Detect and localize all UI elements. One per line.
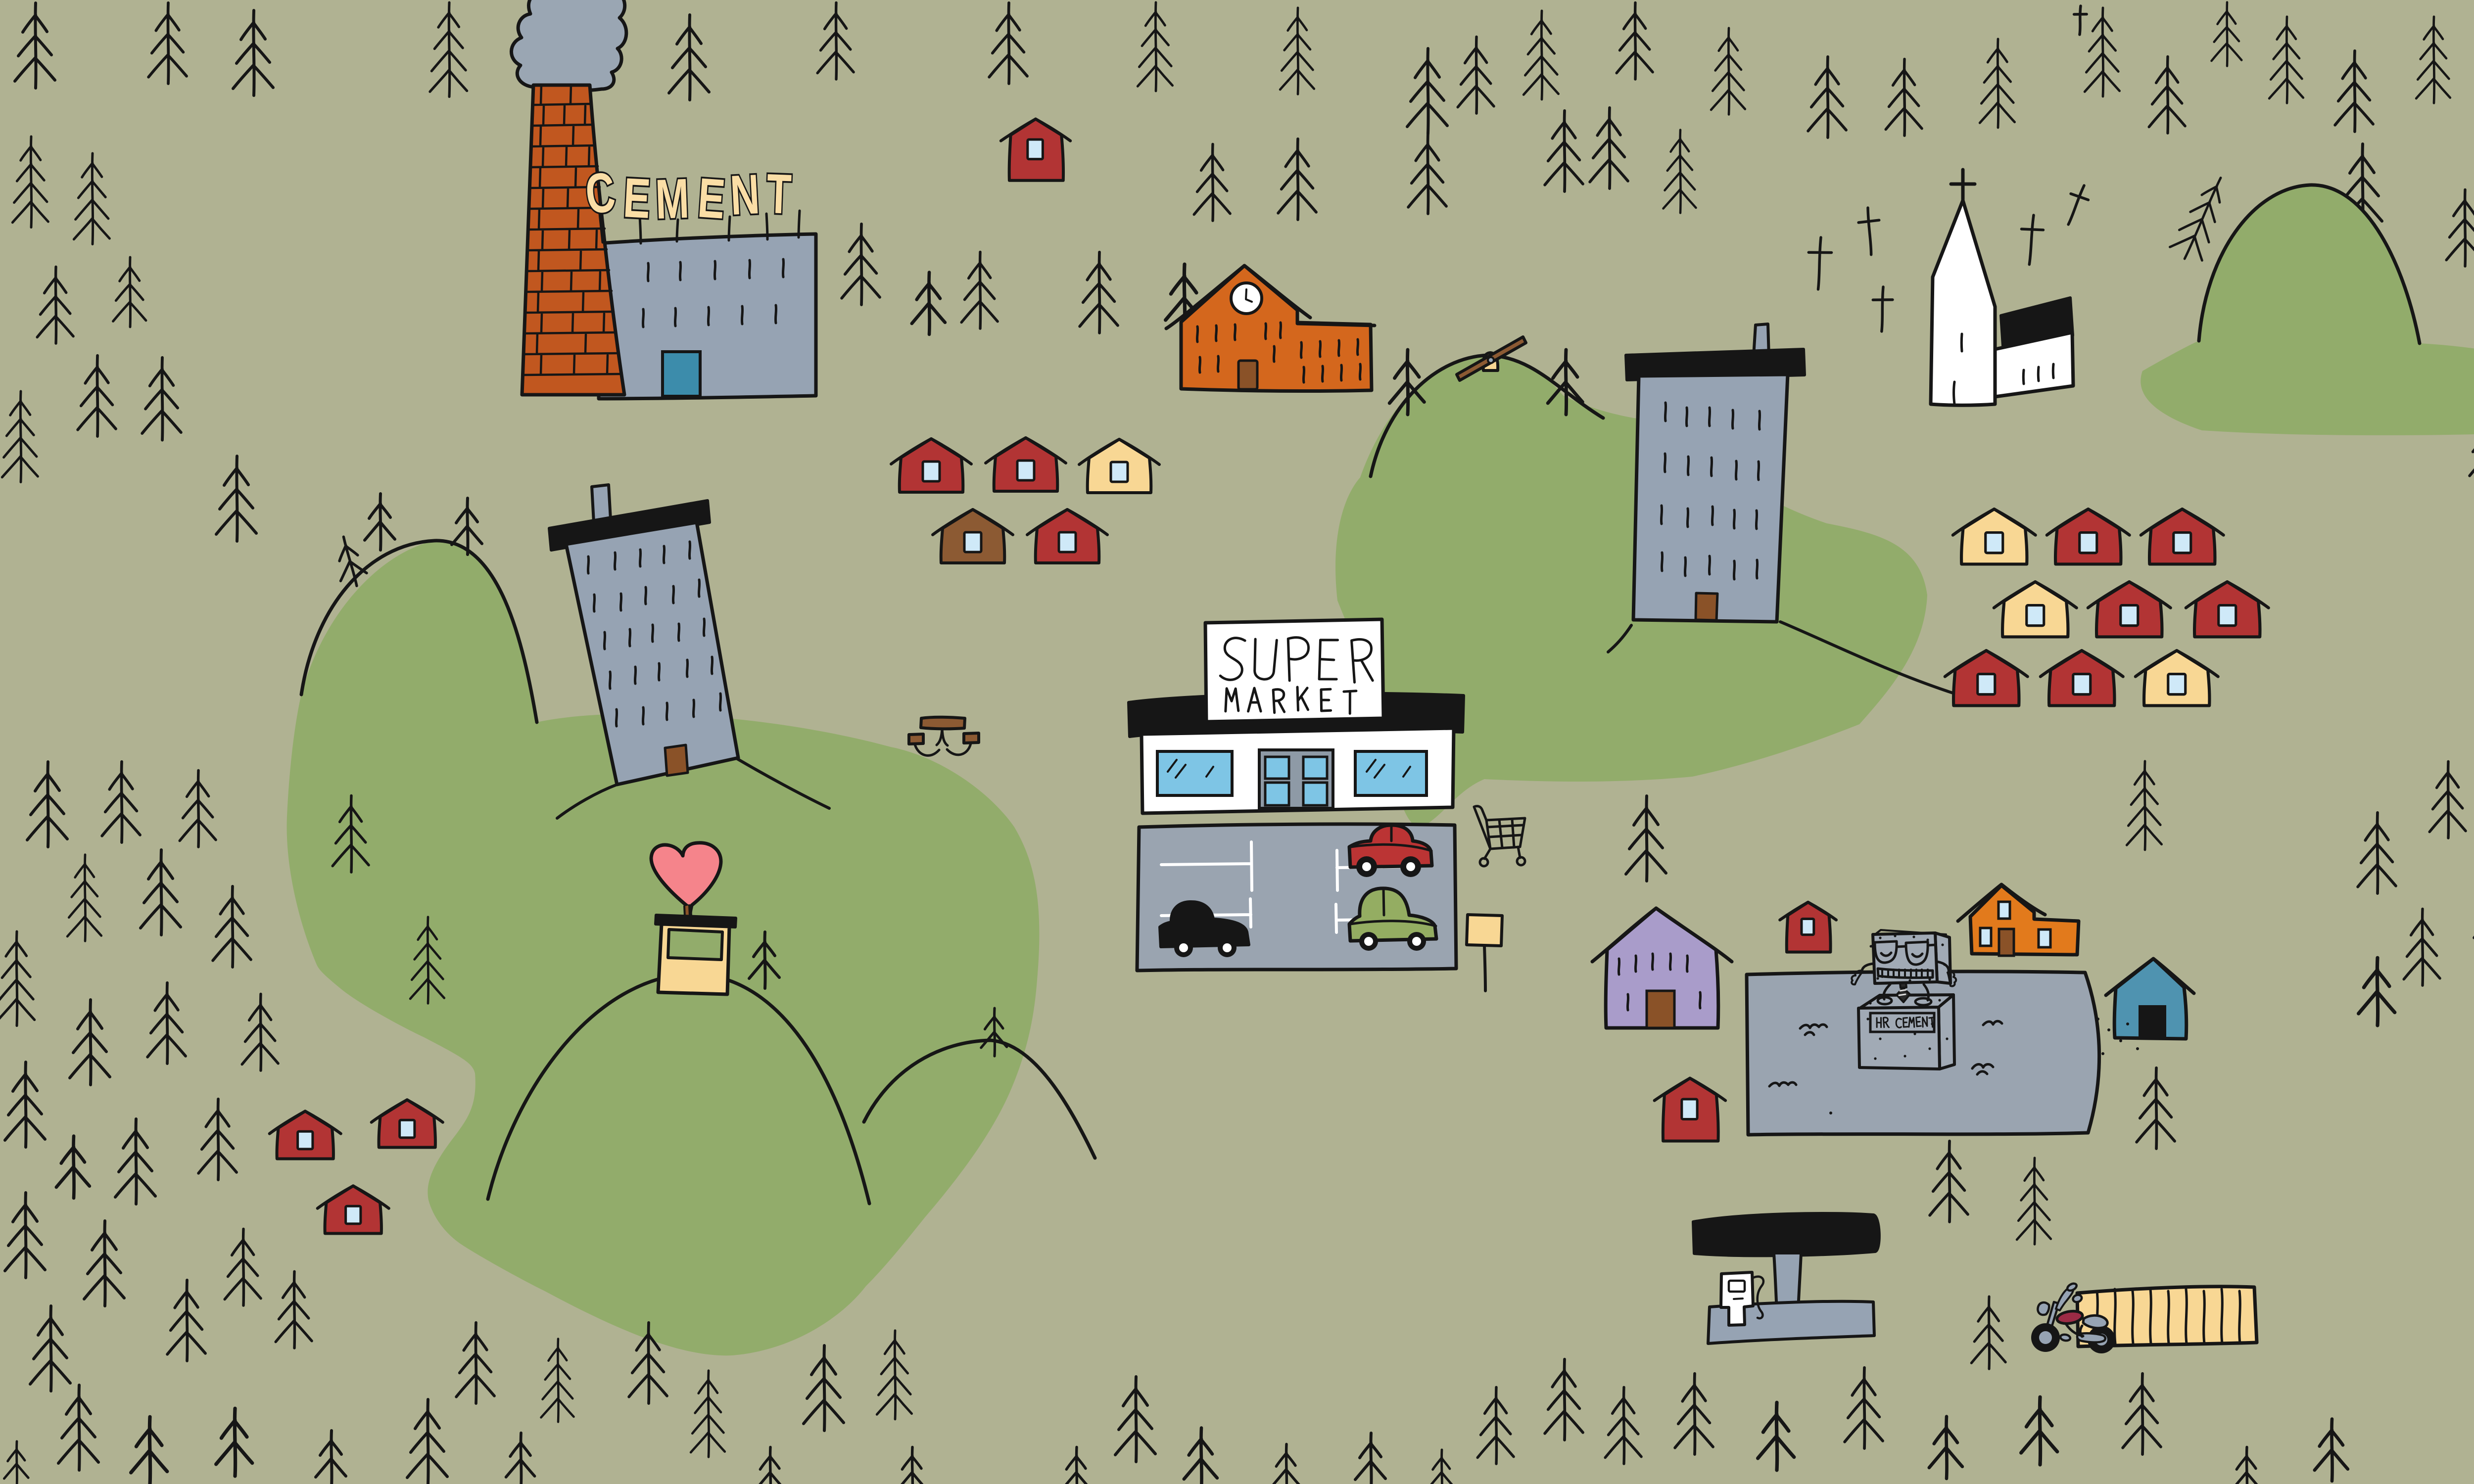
- svg-text:E: E: [696, 166, 727, 231]
- svg-text:M: M: [654, 167, 690, 231]
- svg-text:T: T: [765, 162, 792, 226]
- svg-text:N: N: [729, 163, 761, 227]
- svg-text:E: E: [622, 166, 652, 230]
